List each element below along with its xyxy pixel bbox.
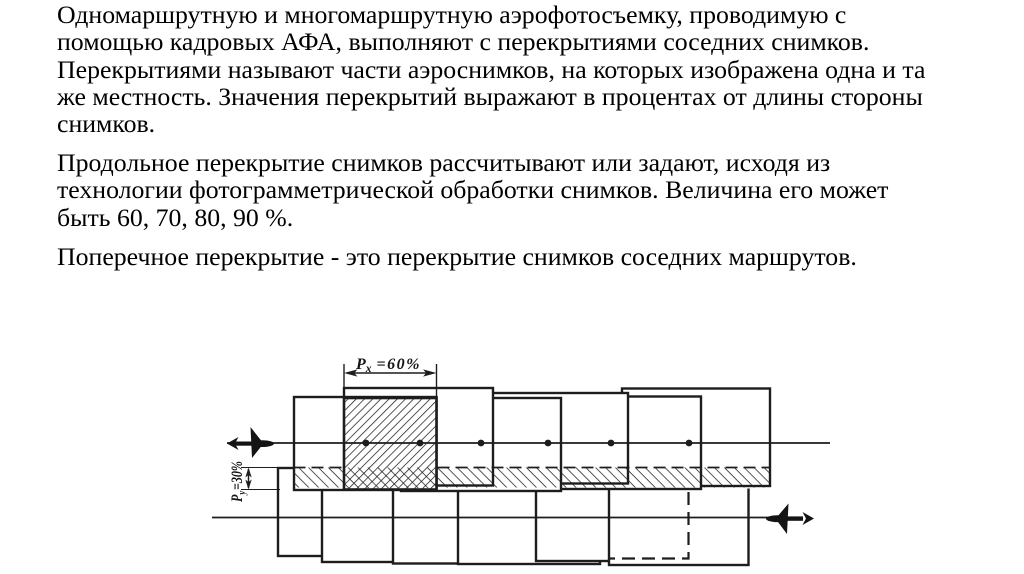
- svg-text:Px=60%: Px=60%: [355, 356, 421, 375]
- svg-text:Py=30%: Py=30%: [230, 461, 249, 502]
